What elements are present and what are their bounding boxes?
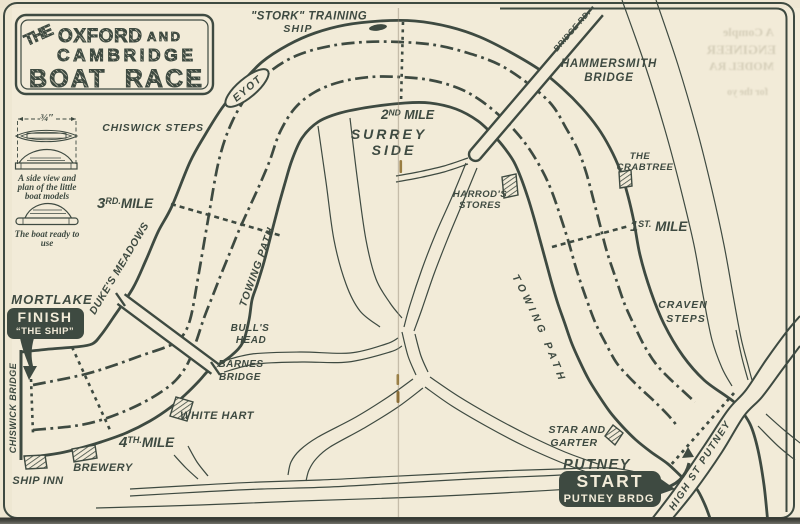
svg-text:CRAVEN: CRAVEN bbox=[658, 299, 708, 311]
svg-text:CHISWICK STEPS: CHISWICK STEPS bbox=[102, 122, 204, 134]
svg-text:MODEL RA: MODEL RA bbox=[709, 59, 774, 73]
svg-text:OXFORD: OXFORD bbox=[58, 26, 142, 47]
svg-text:AND: AND bbox=[147, 29, 180, 44]
svg-text:2ND MILE: 2ND MILE bbox=[380, 107, 435, 122]
svg-text:boat models: boat models bbox=[25, 191, 70, 201]
svg-text:SIDE: SIDE bbox=[372, 142, 417, 158]
svg-text:A Comple: A Comple bbox=[722, 25, 774, 39]
svg-text:GARTER: GARTER bbox=[550, 437, 597, 449]
svg-text:"STORK" TRAINING: "STORK" TRAINING bbox=[251, 11, 367, 23]
svg-text:CHISWICK BRIDGE: CHISWICK BRIDGE bbox=[8, 362, 18, 453]
svg-text:BREWERY: BREWERY bbox=[73, 462, 134, 474]
svg-text:PUTNEY BRDG: PUTNEY BRDG bbox=[564, 493, 655, 505]
svg-text:THE: THE bbox=[630, 151, 651, 162]
svg-text:BOAT RACE: BOAT RACE bbox=[29, 65, 202, 93]
svg-text:STAR AND: STAR AND bbox=[548, 424, 605, 436]
svg-text:SURREY: SURREY bbox=[351, 126, 427, 142]
svg-text:SHIP INN: SHIP INN bbox=[12, 475, 64, 487]
svg-text:WHITE HART: WHITE HART bbox=[180, 410, 255, 422]
svg-text:HEAD: HEAD bbox=[236, 335, 266, 346]
svg-text:for the yo: for the yo bbox=[727, 87, 768, 98]
svg-text:4TH.MILE: 4TH.MILE bbox=[118, 434, 175, 451]
svg-text:START: START bbox=[576, 471, 643, 491]
svg-text:BARNES: BARNES bbox=[218, 359, 263, 370]
svg-text:FINISH: FINISH bbox=[18, 309, 73, 325]
svg-text:BRIDGE: BRIDGE bbox=[219, 372, 261, 383]
svg-text:ENGINEER: ENGINEER bbox=[706, 42, 776, 57]
svg-text:CRABTREE: CRABTREE bbox=[617, 162, 674, 173]
svg-text:HARROD'S: HARROD'S bbox=[453, 189, 507, 200]
svg-text:CAMBRIDGE: CAMBRIDGE bbox=[57, 45, 193, 65]
svg-text:BULL'S: BULL'S bbox=[231, 323, 270, 334]
svg-text:HAMMERSMITH: HAMMERSMITH bbox=[561, 58, 657, 70]
svg-text:MORTLAKE: MORTLAKE bbox=[11, 292, 92, 307]
svg-text:use: use bbox=[41, 238, 54, 248]
svg-text:STORES: STORES bbox=[459, 200, 501, 211]
svg-text:“THE SHIP”: “THE SHIP” bbox=[16, 326, 74, 337]
svg-text:SHIP: SHIP bbox=[283, 23, 312, 35]
svg-text:¾″: ¾″ bbox=[40, 112, 54, 124]
svg-text:BRIDGE: BRIDGE bbox=[584, 72, 634, 84]
svg-text:STEPS: STEPS bbox=[666, 313, 705, 325]
